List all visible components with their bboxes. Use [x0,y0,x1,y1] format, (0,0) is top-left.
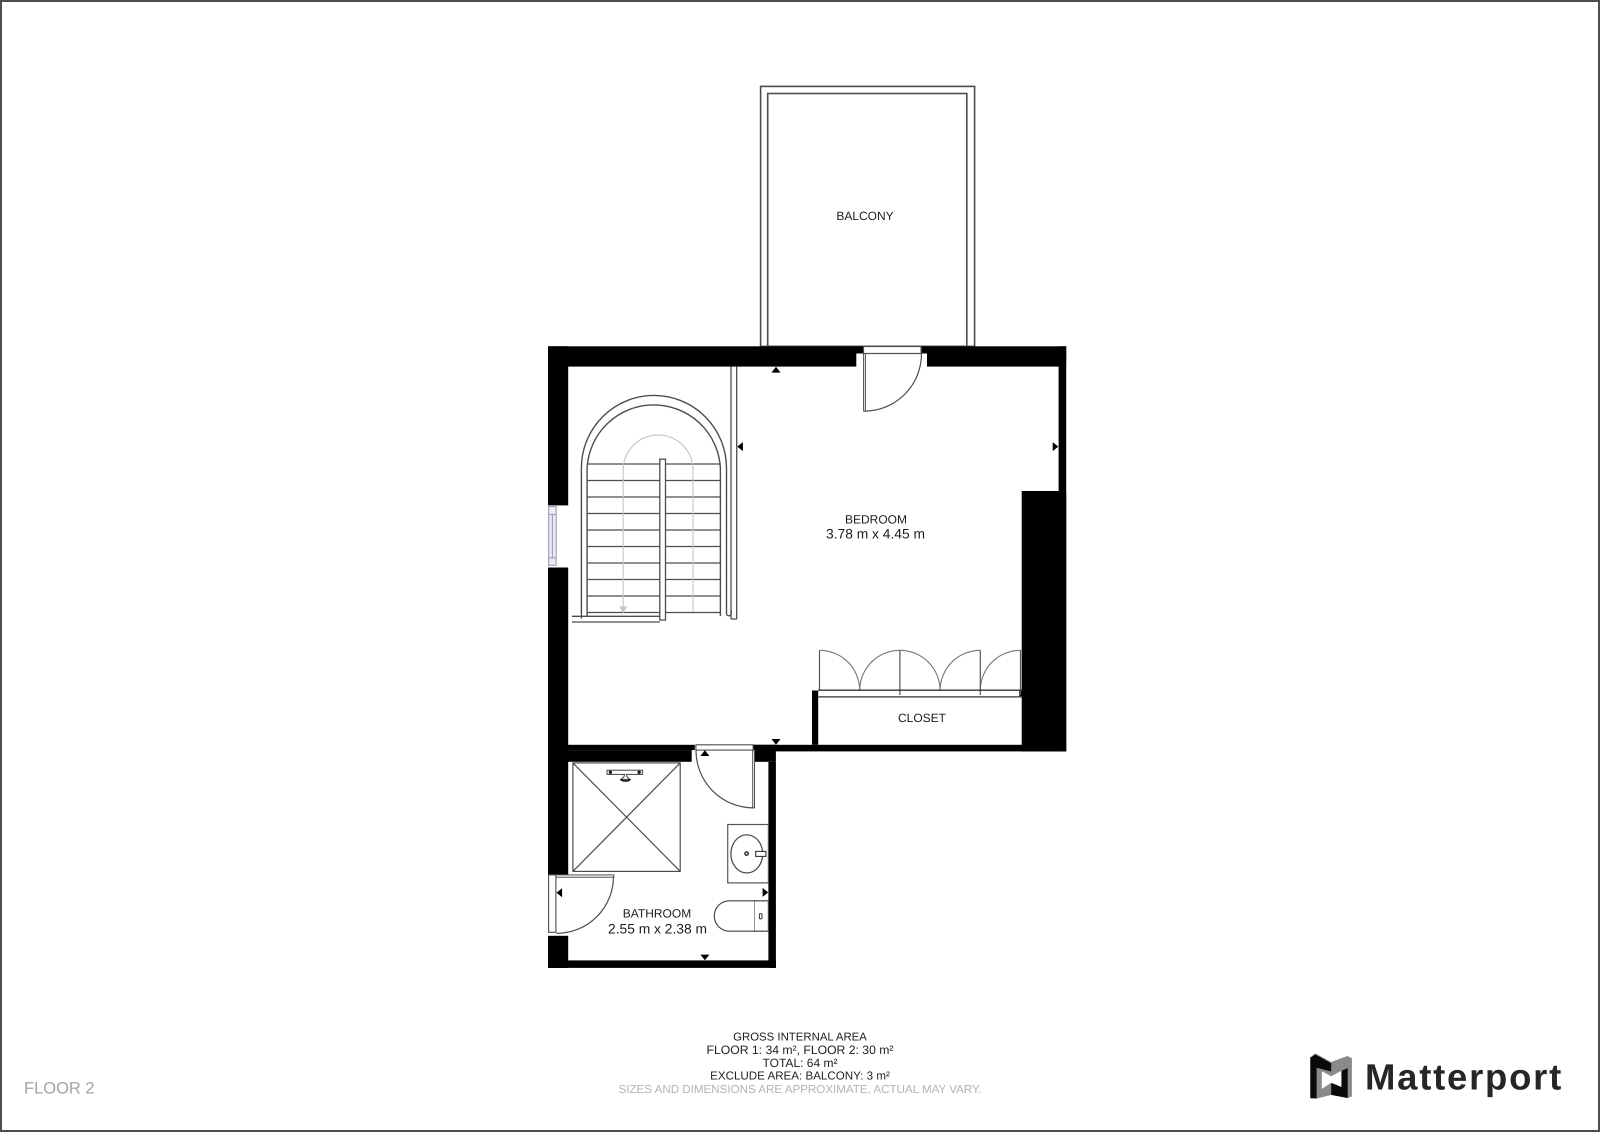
svg-text:FLOOR 1: 34 m², FLOOR 2: 30 m²: FLOOR 1: 34 m², FLOOR 2: 30 m² [707,1043,894,1057]
svg-text:GROSS INTERNAL AREA: GROSS INTERNAL AREA [733,1032,867,1044]
svg-text:BEDROOM: BEDROOM [845,512,907,526]
svg-text:2.55 m x 2.38 m: 2.55 m x 2.38 m [608,922,707,937]
svg-text:3.78 m x 4.45 m: 3.78 m x 4.45 m [826,526,925,541]
svg-text:BATHROOM: BATHROOM [623,907,691,921]
svg-text:SIZES AND DIMENSIONS ARE APPRO: SIZES AND DIMENSIONS ARE APPROXIMATE, AC… [619,1083,982,1096]
svg-text:Matterport: Matterport [1365,1056,1563,1097]
svg-text:EXCLUDE AREA: BALCONY: 3 m²: EXCLUDE AREA: BALCONY: 3 m² [710,1070,890,1083]
svg-text:FLOOR 2: FLOOR 2 [24,1080,95,1098]
svg-text:BALCONY: BALCONY [836,209,893,223]
svg-text:CLOSET: CLOSET [898,711,947,725]
svg-text:TOTAL: 64 m²: TOTAL: 64 m² [763,1056,838,1070]
